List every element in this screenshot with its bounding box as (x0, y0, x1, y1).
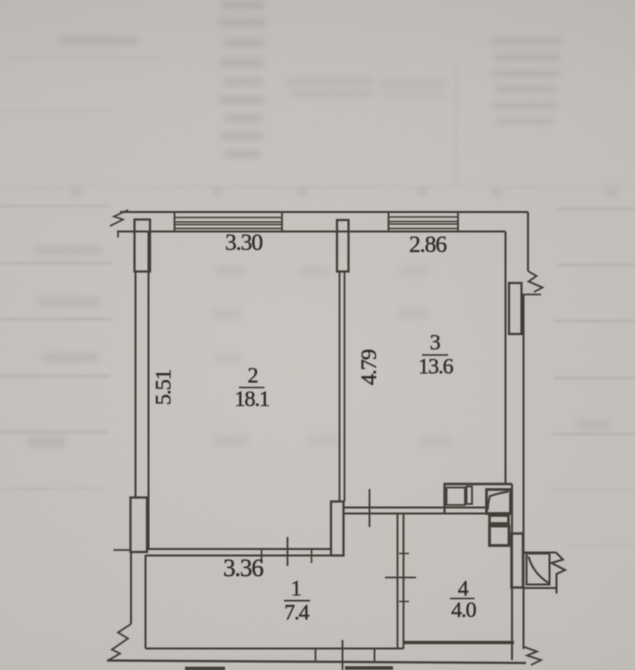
svg-text:2.86: 2.86 (409, 232, 447, 258)
svg-text:3: 3 (430, 330, 441, 355)
svg-text:13.6: 13.6 (418, 354, 454, 379)
svg-text:3.30: 3.30 (225, 230, 262, 256)
svg-text:5.51: 5.51 (151, 370, 176, 405)
svg-text:4.79: 4.79 (356, 349, 381, 385)
svg-text:1: 1 (291, 576, 301, 601)
svg-text:2: 2 (248, 363, 258, 388)
svg-text:18.1: 18.1 (234, 386, 269, 411)
svg-text:4.0: 4.0 (451, 597, 477, 622)
svg-text:7.4: 7.4 (284, 600, 310, 625)
svg-text:3.36: 3.36 (223, 555, 263, 582)
